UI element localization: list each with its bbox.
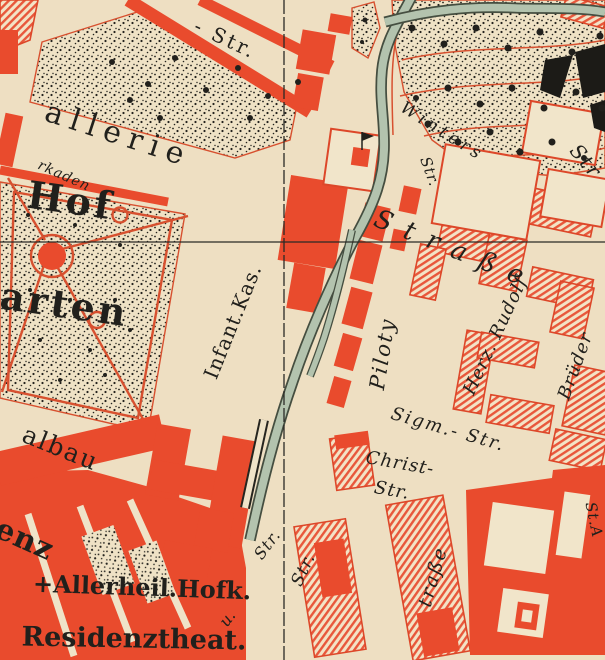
tree-dot — [118, 243, 122, 247]
building-block — [0, 30, 18, 74]
tree-dot — [505, 45, 512, 52]
tree-dot — [235, 65, 241, 71]
building-block — [194, 507, 234, 552]
tree-dot — [103, 373, 107, 377]
tree-dot — [127, 97, 133, 103]
tree-dot — [128, 328, 132, 332]
tree-dot — [517, 149, 524, 156]
tree-dot — [157, 115, 163, 121]
tree-dot — [172, 55, 178, 61]
tree-dot — [477, 101, 484, 108]
building-block — [484, 502, 554, 574]
tree-dot — [537, 29, 544, 36]
tree-dot — [295, 79, 301, 85]
tree-dot — [73, 223, 77, 227]
tree-dot — [597, 33, 604, 40]
tree-dot — [541, 105, 548, 112]
tree-dot — [247, 115, 253, 121]
building-block — [432, 144, 540, 239]
tree-dot — [509, 85, 516, 92]
tree-dot — [88, 348, 92, 352]
tree-dot — [445, 85, 452, 92]
map-label-residenztheat: Residenztheat. — [21, 622, 246, 657]
flag-building — [323, 129, 380, 191]
tree-dot — [487, 129, 494, 136]
building-block — [328, 13, 353, 35]
tree-dot — [573, 89, 580, 96]
building-block — [416, 607, 459, 657]
map-canvas[interactable]: - Str.allerierkadenHofartenInfant.Kas.Wi… — [0, 0, 605, 660]
hofgarten-fountain — [38, 242, 66, 270]
tree-dot — [549, 139, 556, 146]
tree-dot — [413, 95, 419, 101]
tree-dot — [363, 18, 368, 23]
historic-city-map: - Str.allerierkadenHofartenInfant.Kas.Wi… — [0, 0, 605, 660]
tree-dot — [409, 25, 416, 32]
tree-dot — [473, 25, 480, 32]
tree-dot — [265, 93, 271, 99]
tree-dot — [203, 87, 209, 93]
tree-dot — [109, 59, 115, 65]
tree-dot — [569, 49, 576, 56]
tree-dot — [441, 41, 448, 48]
tree-dot — [38, 338, 42, 342]
tree-dot — [58, 378, 62, 382]
tree-dot — [360, 40, 364, 44]
tree-dot — [145, 81, 151, 87]
building-block — [296, 29, 336, 74]
building-block — [521, 609, 533, 622]
